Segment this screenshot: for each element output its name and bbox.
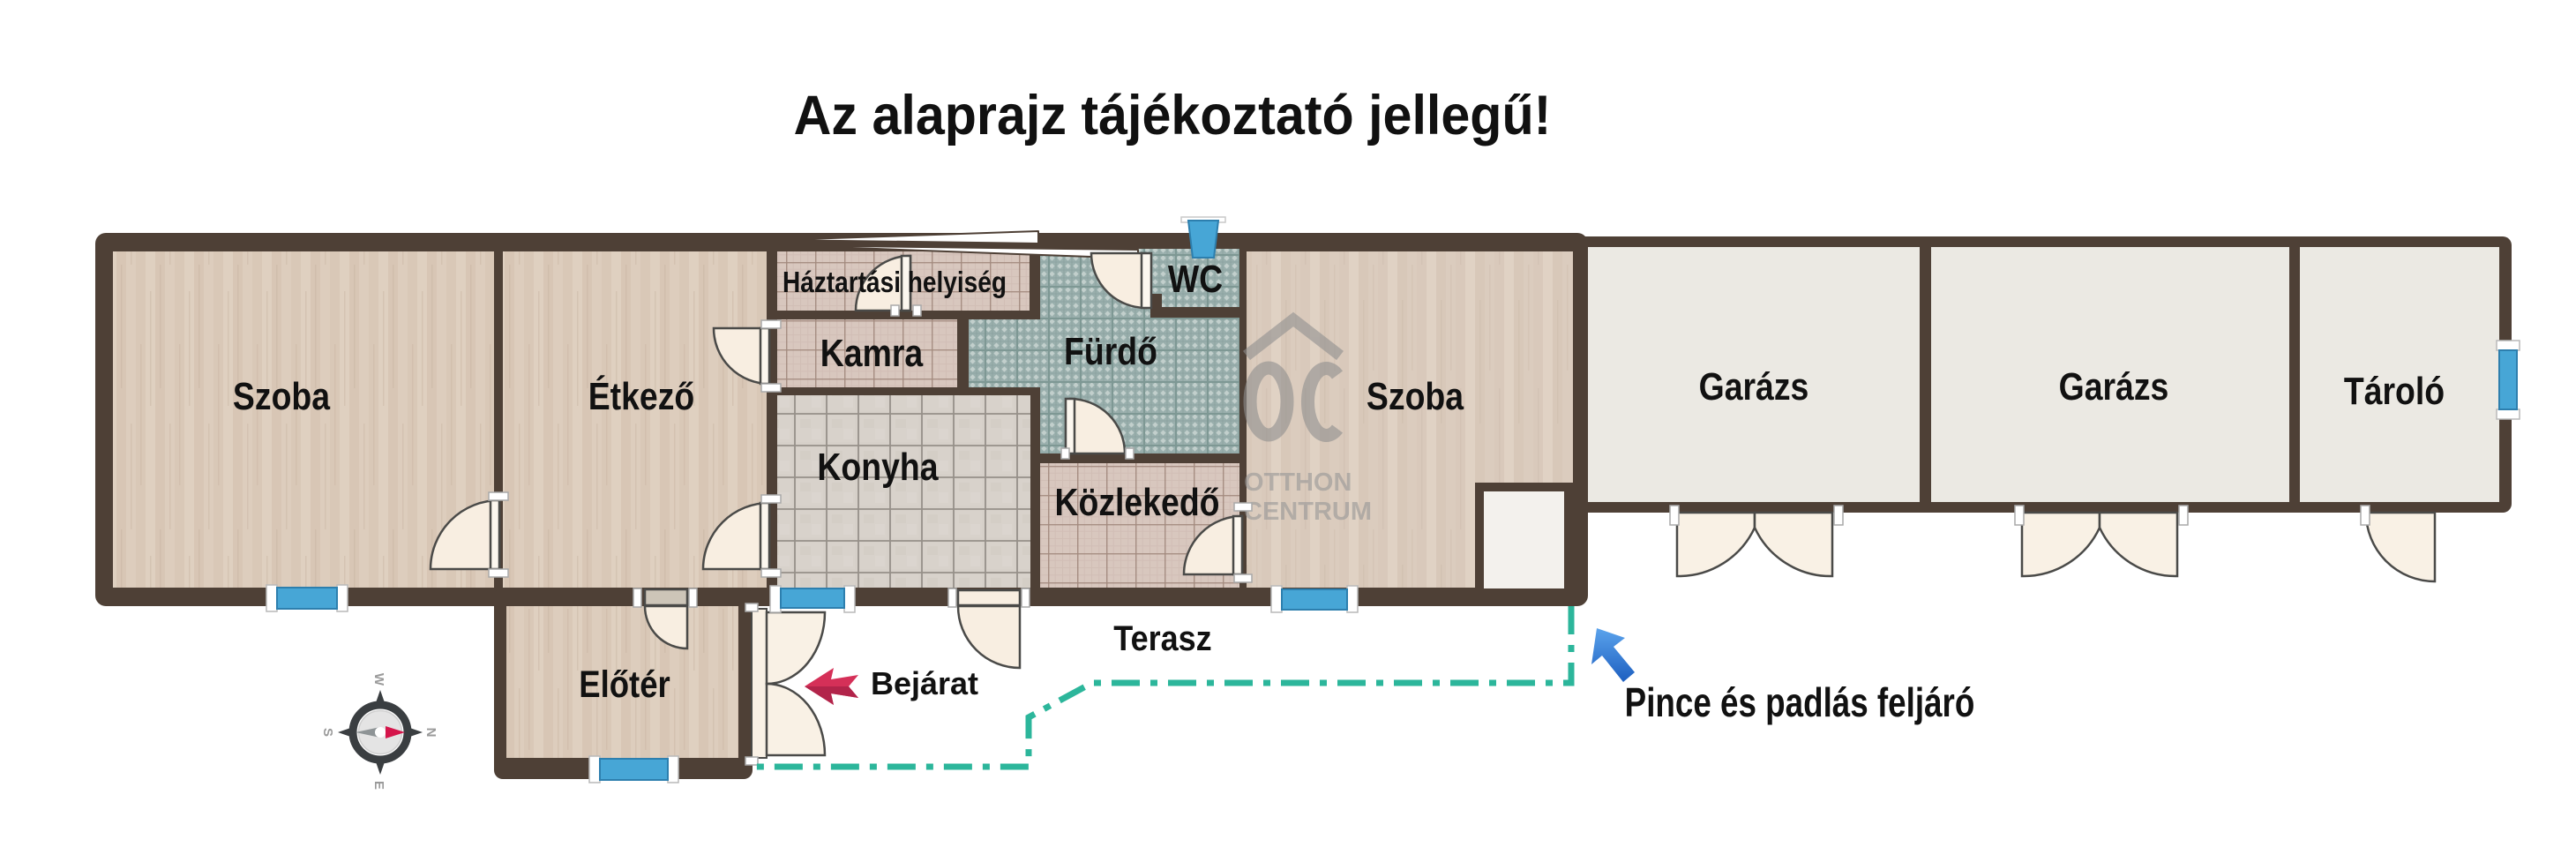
svg-text:Kamra: Kamra [820,331,924,375]
svg-text:WC: WC [1168,257,1223,301]
svg-text:S: S [320,728,335,737]
svg-text:CENTRUM: CENTRUM [1244,498,1372,526]
svg-text:Bejárat: Bejárat [871,665,978,701]
svg-text:Konyha: Konyha [817,445,938,489]
svg-text:Szoba: Szoba [1367,374,1464,418]
svg-text:W: W [371,673,386,686]
svg-text:Tároló: Tároló [2344,369,2445,413]
svg-text:Garázs: Garázs [1699,364,1809,409]
svg-text:Terasz: Terasz [1113,619,1211,658]
svg-text:N: N [423,728,438,738]
svg-text:OTTHON: OTTHON [1244,468,1352,497]
svg-text:Közlekedő: Közlekedő [1054,480,1219,524]
svg-text:Előtér: Előtér [579,663,670,705]
svg-text:Garázs: Garázs [2059,364,2169,409]
svg-text:Fürdő: Fürdő [1064,329,1157,373]
svg-text:Szoba: Szoba [233,374,330,418]
svg-text:Háztartási helyiség: Háztartási helyiség [783,266,1007,299]
svg-text:E: E [371,781,386,790]
svg-text:Pince és padlás feljáró: Pince és padlás feljáró [1625,679,1975,725]
svg-text:Az alaprajz tájékoztató jelleg: Az alaprajz tájékoztató jellegű! [794,84,1552,146]
svg-text:Étkező: Étkező [588,374,695,418]
